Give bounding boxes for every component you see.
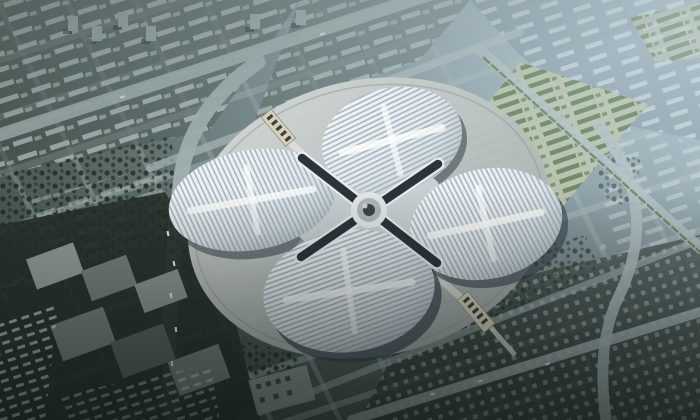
scene-canvas: [0, 0, 700, 420]
aerial-rendering: Bird's-eye architectural visualization: …: [0, 0, 700, 420]
vignette-bottom: [0, 0, 700, 420]
